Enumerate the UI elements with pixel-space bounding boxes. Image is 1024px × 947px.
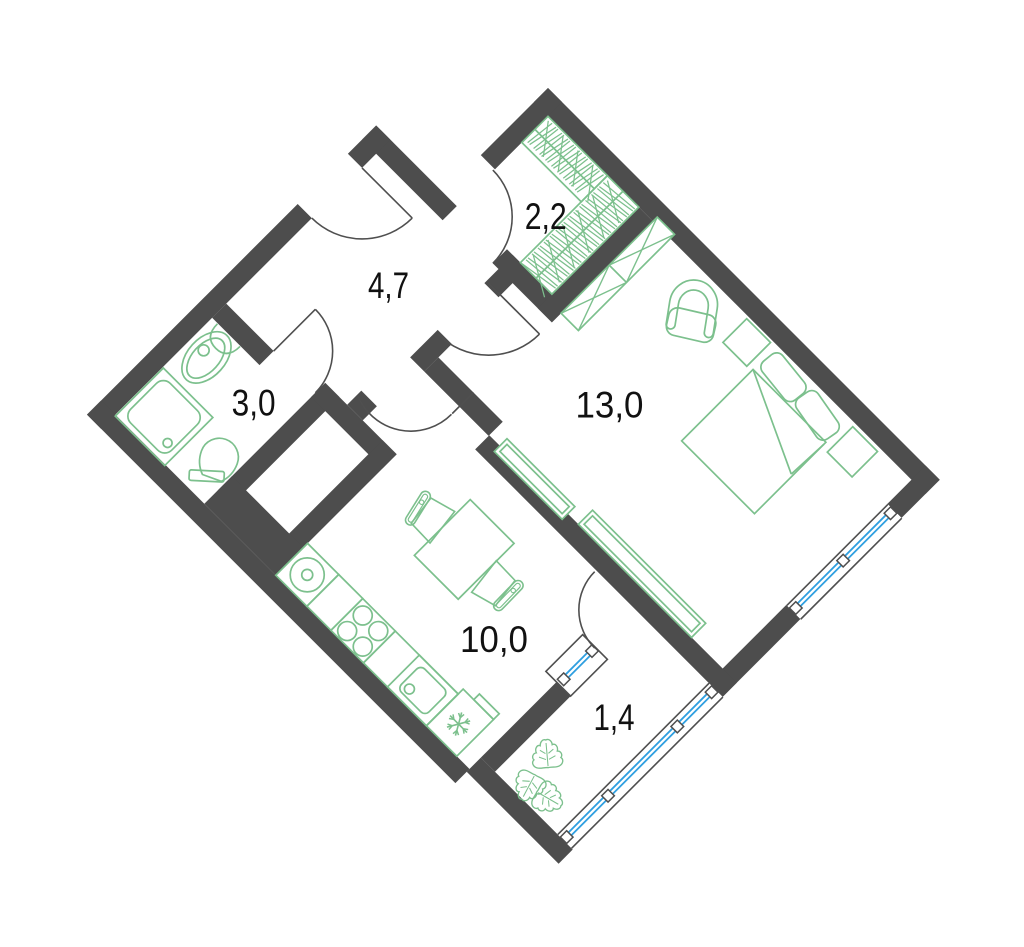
svg-text:3,0: 3,0 bbox=[232, 382, 276, 424]
svg-text:13,0: 13,0 bbox=[576, 384, 644, 426]
svg-text:2,2: 2,2 bbox=[525, 195, 567, 237]
svg-text:1,4: 1,4 bbox=[594, 696, 635, 738]
svg-text:10,0: 10,0 bbox=[460, 618, 528, 660]
svg-text:4,7: 4,7 bbox=[368, 264, 409, 306]
